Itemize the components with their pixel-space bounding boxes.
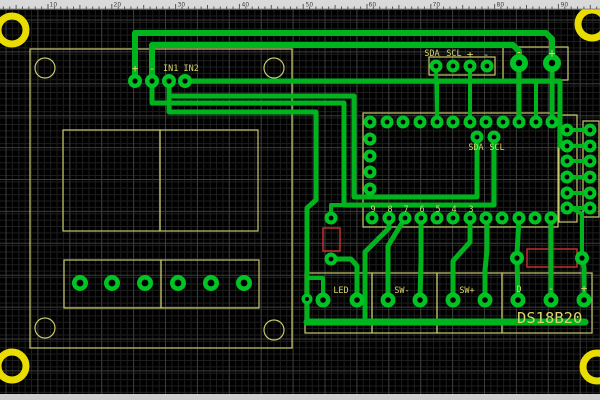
ruler-number: 60 [369,2,377,9]
pad-hole [329,257,334,262]
pad-hole [418,120,423,125]
pad-hole [77,280,84,287]
pad-hole [450,297,456,303]
pad-hole [517,216,522,221]
pad-hole [475,135,480,140]
pad-hole [385,120,390,125]
silkscreen-label[interactable]: 9 [370,205,375,215]
silkscreen-label[interactable]: - [483,48,490,61]
pad-hole [565,159,570,164]
pad-hole [516,60,522,66]
silkscreen-label[interactable]: 7 [403,205,408,215]
pad-hole [588,206,593,211]
pad-hole [109,280,116,287]
silkscreen-label[interactable]: 4 [451,205,456,215]
component-label-ds18b20[interactable]: DS18B20 [517,309,582,327]
copper-trace[interactable] [485,218,487,300]
pad-hole [368,120,373,125]
pad-hole [581,297,587,303]
ruler-number: 80 [497,2,505,9]
pad-hole [565,191,570,196]
pcb-layout-canvas[interactable]: +-IN1 IN2SDASCL+--+SDASCL9876543LEDSW-SW… [0,0,600,400]
pad-hole [517,120,522,125]
silkscreen-label[interactable]: + [548,46,555,60]
pad-hole [565,206,570,211]
pad-hole [387,216,392,221]
pad-hole [588,159,593,164]
silkscreen-label[interactable]: 8 [387,205,392,215]
pad-hole [468,216,473,221]
silkscreen-label[interactable]: SW- [394,286,409,296]
pad-hole [548,297,554,303]
silkscreen-label[interactable]: LED [333,286,348,296]
pad-hole [451,216,456,221]
pad-hole [451,64,456,69]
grid-layer [0,0,600,400]
pad-hole [501,120,506,125]
silkscreen-label[interactable]: - [548,282,555,295]
pad-hole [534,120,539,125]
silkscreen-label[interactable]: - [149,62,156,75]
pad-hole [385,297,391,303]
pad-hole [142,280,149,287]
pad-hole [368,170,373,175]
pad-hole [492,135,497,140]
silkscreen-label[interactable]: 5 [435,205,440,215]
pad-hole [434,64,439,69]
pad-hole [401,120,406,125]
pad-hole [132,78,137,83]
pad-hole [565,175,570,180]
pad-hole [565,128,570,133]
pad-hole [588,191,593,196]
pad-hole [403,216,408,221]
pad-hole [484,120,489,125]
pad-hole [482,297,488,303]
pad-hole [588,128,593,133]
pad-hole [549,60,555,66]
pad-hole [550,120,555,125]
pad-hole [484,216,489,221]
ruler-background [0,0,600,9]
silkscreen-label[interactable]: + [132,62,139,75]
ruler-number: 90 [561,2,569,9]
pad-hole [354,297,360,303]
silkscreen-label[interactable]: D [516,285,521,295]
pad-hole [451,120,456,125]
pcb-editor-window: +-IN1 IN2SDASCL+--+SDASCL9876543LEDSW-SW… [0,0,600,400]
pad-hole [305,297,309,301]
pad-hole [435,216,440,221]
canvas-bottom-edge [0,394,600,400]
pad-hole [208,280,215,287]
silkscreen-label[interactable]: 3 [468,205,473,215]
pad-hole [579,255,584,260]
pad-hole [468,64,473,69]
pad-hole [468,120,473,125]
pad-hole [435,120,440,125]
copper-trace[interactable] [420,218,421,300]
pad-hole [514,255,519,260]
pad-hole [241,280,248,287]
pad-hole [320,297,326,303]
silkscreen-label[interactable]: SCL [446,49,461,59]
pad-hole [182,78,187,83]
pad-hole [149,78,154,83]
ruler-number: 30 [178,2,186,9]
pad-hole [419,216,424,221]
pad-hole [588,175,593,180]
silkscreen-label[interactable]: 6 [419,205,424,215]
pad-hole [500,216,505,221]
ruler-number: 10 [50,2,58,9]
ruler-number: 50 [306,2,314,9]
ruler-number: 70 [433,2,441,9]
pad-hole [533,216,538,221]
silkscreen-label[interactable]: IN1 IN2 [163,64,199,74]
top-ruler: 102030405060708090 [0,0,600,9]
ruler-number: 40 [242,2,250,9]
pad-hole [417,297,423,303]
silkscreen-label[interactable]: SW+ [459,286,474,296]
ruler-number: 20 [114,2,122,9]
pad-hole [329,216,334,221]
pad-hole [549,216,554,221]
pad-hole [565,144,570,149]
silkscreen-label[interactable]: SCL [489,143,504,153]
copper-trace[interactable] [436,66,437,122]
silkscreen-label[interactable]: SDA [468,143,483,153]
pad-hole [370,216,375,221]
silkscreen-label[interactable]: + [581,282,588,295]
pad-hole [166,78,171,83]
pad-hole [485,64,490,69]
pad-hole [368,137,373,142]
pad-hole [368,154,373,159]
pad-hole [368,187,373,192]
silkscreen-label[interactable]: - [515,45,522,59]
silkscreen-label[interactable]: + [467,48,474,61]
pad-hole [588,144,593,149]
pad-hole [515,297,521,303]
silkscreen-label[interactable]: SDA [424,49,439,59]
pad-hole [175,280,182,287]
